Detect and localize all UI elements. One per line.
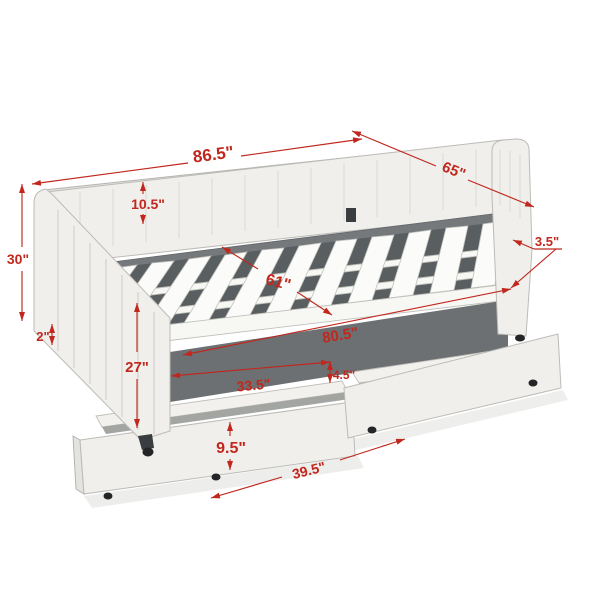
daybed-dimension-diagram: 86.5" 65" 30" 10.5" 3.5" 61" <box>0 0 600 600</box>
back-bracket-hardware <box>346 208 356 222</box>
dimension-label: 2" <box>36 329 49 344</box>
diagram-canvas: 86.5" 65" 30" 10.5" 3.5" 61" <box>0 0 600 600</box>
caster <box>368 427 377 434</box>
dimension-label: 10.5" <box>131 196 165 212</box>
dimension-label: 27" <box>125 359 149 376</box>
dimension-label: 30" <box>7 251 29 267</box>
right-arm <box>492 139 532 342</box>
bed-illustration <box>34 139 568 508</box>
caster <box>212 474 221 481</box>
dimension-label: 3.5" <box>535 234 559 249</box>
caster <box>515 335 525 342</box>
dimension-label: 9.5" <box>216 440 246 457</box>
dimension-overall-height: 30" <box>7 184 29 321</box>
dimension-line <box>241 139 362 156</box>
caster <box>104 493 113 500</box>
caster <box>529 380 538 387</box>
dimension-label: 33.5" <box>236 376 271 395</box>
dimension-label: 4.5" <box>333 368 355 382</box>
caster <box>143 448 154 457</box>
dimension-label: 86.5" <box>192 142 235 166</box>
